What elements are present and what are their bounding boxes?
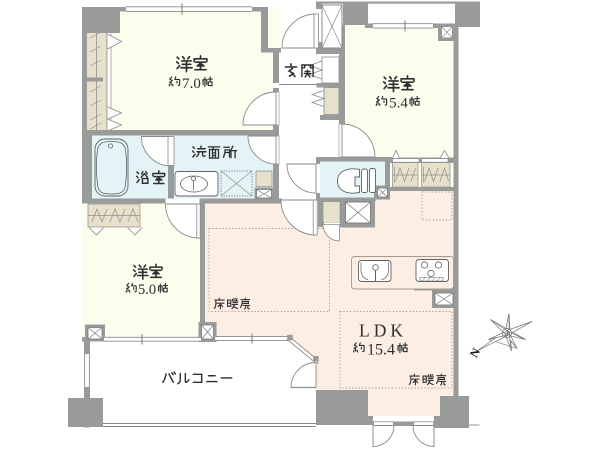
svg-text:7.0: 7.0 bbox=[182, 76, 201, 92]
svg-text:5.4: 5.4 bbox=[389, 96, 408, 112]
svg-text:15.4: 15.4 bbox=[367, 342, 395, 359]
svg-text:LDK: LDK bbox=[359, 321, 407, 341]
svg-text:5.0: 5.0 bbox=[138, 282, 156, 298]
